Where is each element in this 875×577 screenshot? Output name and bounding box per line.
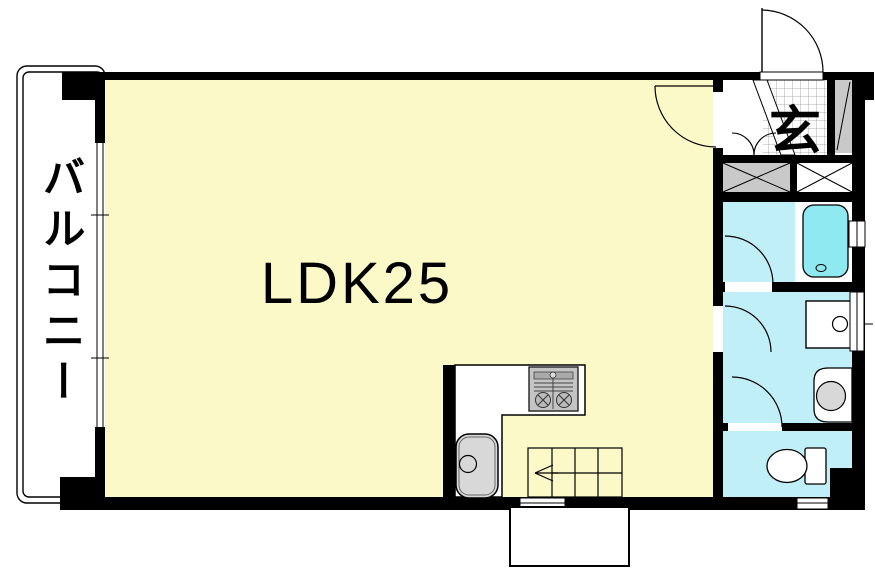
wall-wash-toilet-left: [713, 423, 728, 431]
wall-top: [62, 72, 760, 80]
bathtub: [803, 205, 848, 277]
wall-toilet-corner-block: [830, 468, 864, 498]
wall-kitchen: [443, 365, 455, 497]
vanity-bowl: [817, 382, 846, 411]
toilet: [767, 448, 826, 484]
bath-window: [849, 221, 865, 247]
toilet-tank: [805, 448, 826, 484]
entrance-threshold: [760, 72, 823, 80]
vanity-sink: [814, 368, 852, 422]
wall-storage-divider: [790, 163, 797, 192]
entrance-door-arc: [762, 10, 823, 72]
balcony-label: バルコニー: [29, 155, 91, 410]
wall-bath-wash-left: [713, 282, 725, 292]
stair-landing-box: [510, 507, 629, 566]
kitchen-sink: [456, 434, 498, 498]
floor-plan: LDK25 バルコニー 玄: [0, 0, 875, 577]
wall-interior-stub: [713, 72, 723, 92]
sink-drain: [460, 456, 477, 473]
toilet-bowl: [767, 450, 807, 483]
stove-knob: [550, 372, 556, 378]
wall-genkan-cabinet: [827, 80, 835, 155]
washing-machine-drum: [833, 317, 848, 332]
wall-bath-wash-right: [772, 282, 865, 292]
wall-left-upper: [95, 72, 105, 143]
ldk-room-label: LDK25: [252, 250, 462, 317]
wall-bottom: [60, 497, 864, 510]
toilet-vent: [797, 498, 828, 509]
washroom-window: [850, 292, 864, 351]
gas-stove: [529, 367, 578, 411]
wall-storage-bath: [713, 192, 865, 202]
entrance-label: 玄: [769, 89, 821, 164]
entrance-door: [760, 8, 823, 80]
wall-wash-toilet-right: [782, 423, 865, 431]
